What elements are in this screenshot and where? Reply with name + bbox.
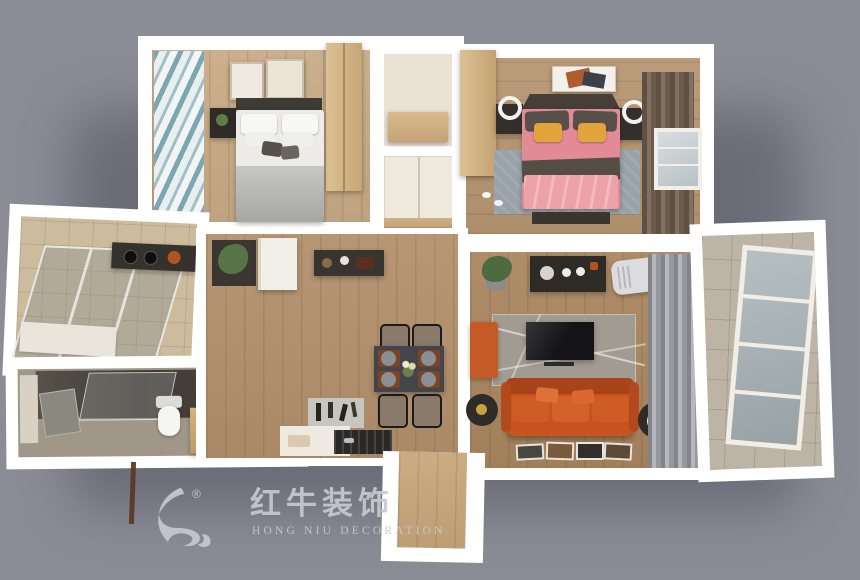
hanging-utensil (339, 404, 348, 422)
placemat (418, 350, 440, 367)
dining-chair (412, 394, 442, 428)
brand-name-english: HONG NIU DECORATION (252, 526, 446, 538)
placemat (418, 371, 440, 388)
placemat (378, 371, 400, 388)
flower-centerpiece (401, 359, 417, 377)
sideboard-console (314, 250, 384, 276)
accent-pillow (280, 145, 299, 160)
toilet (156, 396, 182, 436)
wall-art-frame (230, 62, 264, 100)
orange-accent-bench (470, 322, 498, 378)
room-block-secondary-bedroom (138, 36, 384, 236)
side-table-left (466, 392, 500, 428)
low-wood-cabinet (388, 112, 448, 142)
wardrobe (326, 43, 362, 191)
window-mullion (658, 147, 698, 149)
plate (421, 351, 436, 366)
bathroom-window (20, 375, 39, 443)
hanging-utensil (351, 402, 358, 417)
yellow-pillow (578, 123, 606, 142)
window-mullion (658, 164, 698, 166)
pillow (283, 132, 313, 146)
balcony-floor (702, 232, 822, 470)
decor-stick (129, 462, 136, 524)
counter-tray (288, 435, 310, 447)
green-plant (218, 244, 248, 274)
plate (381, 351, 396, 366)
floor-plant (482, 256, 512, 292)
brand-name-chinese: 红牛装饰 (250, 488, 394, 519)
room-block-living-room (458, 240, 710, 480)
slipper (494, 200, 503, 206)
toilet-bowl (158, 406, 180, 436)
art-frame (604, 442, 633, 460)
sofa-pillow (535, 387, 558, 403)
tv-flat-panel (526, 322, 594, 360)
utensil-pegboard (308, 398, 364, 428)
ring-lamp (498, 96, 522, 120)
room-block-dining-hall (196, 228, 468, 466)
plate (381, 372, 396, 387)
kitchen-counter-white (19, 321, 117, 357)
plant-shelf (212, 240, 256, 286)
console-accent (590, 262, 598, 270)
decor-bowl (322, 258, 332, 268)
tv-stand-bar (544, 362, 574, 366)
console-decor (576, 267, 585, 276)
room-block-master-bedroom (452, 44, 714, 248)
headboard (522, 94, 620, 109)
decor-bowl (340, 256, 349, 265)
registered-mark: ® (192, 488, 201, 500)
art-frame (546, 442, 575, 461)
stove-burner (123, 250, 138, 265)
window-mullion (735, 390, 801, 400)
sofa-pillow (571, 389, 594, 405)
pillow (282, 114, 318, 134)
pillow (241, 114, 277, 134)
console-decor (540, 266, 554, 280)
bathroom-mirror (39, 388, 81, 437)
bed-pink (522, 109, 620, 209)
wall-art-frame (266, 59, 304, 99)
ac-vents (617, 266, 634, 290)
art-shape-dark (582, 71, 606, 89)
nightstand (210, 108, 236, 138)
art-frame (576, 442, 604, 460)
console-decor (562, 268, 571, 277)
window-mullion (743, 294, 809, 304)
closet-door-seam (418, 157, 420, 219)
placemat (378, 350, 400, 367)
room-block-balcony (690, 220, 835, 483)
wardrobe-seam (343, 43, 345, 191)
slipper (482, 192, 491, 198)
orange-sofa (506, 378, 634, 436)
bed-gray (236, 110, 324, 222)
plate (421, 372, 436, 387)
tv-console (530, 256, 606, 292)
sofa-seat-cushion (592, 396, 629, 422)
hanging-utensil (328, 402, 333, 418)
dining-chair (378, 394, 408, 428)
cooking-pot (167, 251, 181, 265)
render-canvas: ® 红牛装饰 HONG NIU DECORATION (0, 0, 860, 580)
sofa-armrest (501, 382, 511, 432)
cooktop-counter (111, 242, 196, 272)
abstract-art-frame (552, 66, 616, 92)
tall-white-cabinet (258, 238, 297, 290)
headboard (236, 98, 322, 110)
gold-table-lamp (476, 404, 487, 415)
window-mullion (739, 342, 805, 352)
potted-plant (216, 114, 228, 126)
teal-striped-curtain (154, 51, 204, 221)
leaning-art-frames (516, 440, 630, 458)
balcony-window (725, 245, 818, 451)
gray-blanket (236, 166, 324, 222)
room-block-hallway-closets (372, 36, 464, 236)
watermark: ® 红牛装饰 HONG NIU DECORATION (128, 460, 448, 560)
hongniu-bull-logo-icon (146, 486, 222, 548)
bed-end-bench (532, 212, 610, 224)
dining-table (374, 346, 444, 392)
closet-doors (384, 156, 454, 220)
faucet (344, 438, 354, 443)
decor-tray (356, 257, 374, 269)
art-frame (516, 443, 545, 460)
window (654, 128, 702, 190)
plant-leaves (482, 256, 512, 282)
yellow-pillow (534, 123, 562, 142)
wardrobe (460, 50, 496, 176)
hanging-utensil (316, 403, 321, 421)
stove-burner (143, 251, 158, 266)
closet-floor-strip (384, 218, 452, 228)
pink-duvet (524, 175, 618, 209)
